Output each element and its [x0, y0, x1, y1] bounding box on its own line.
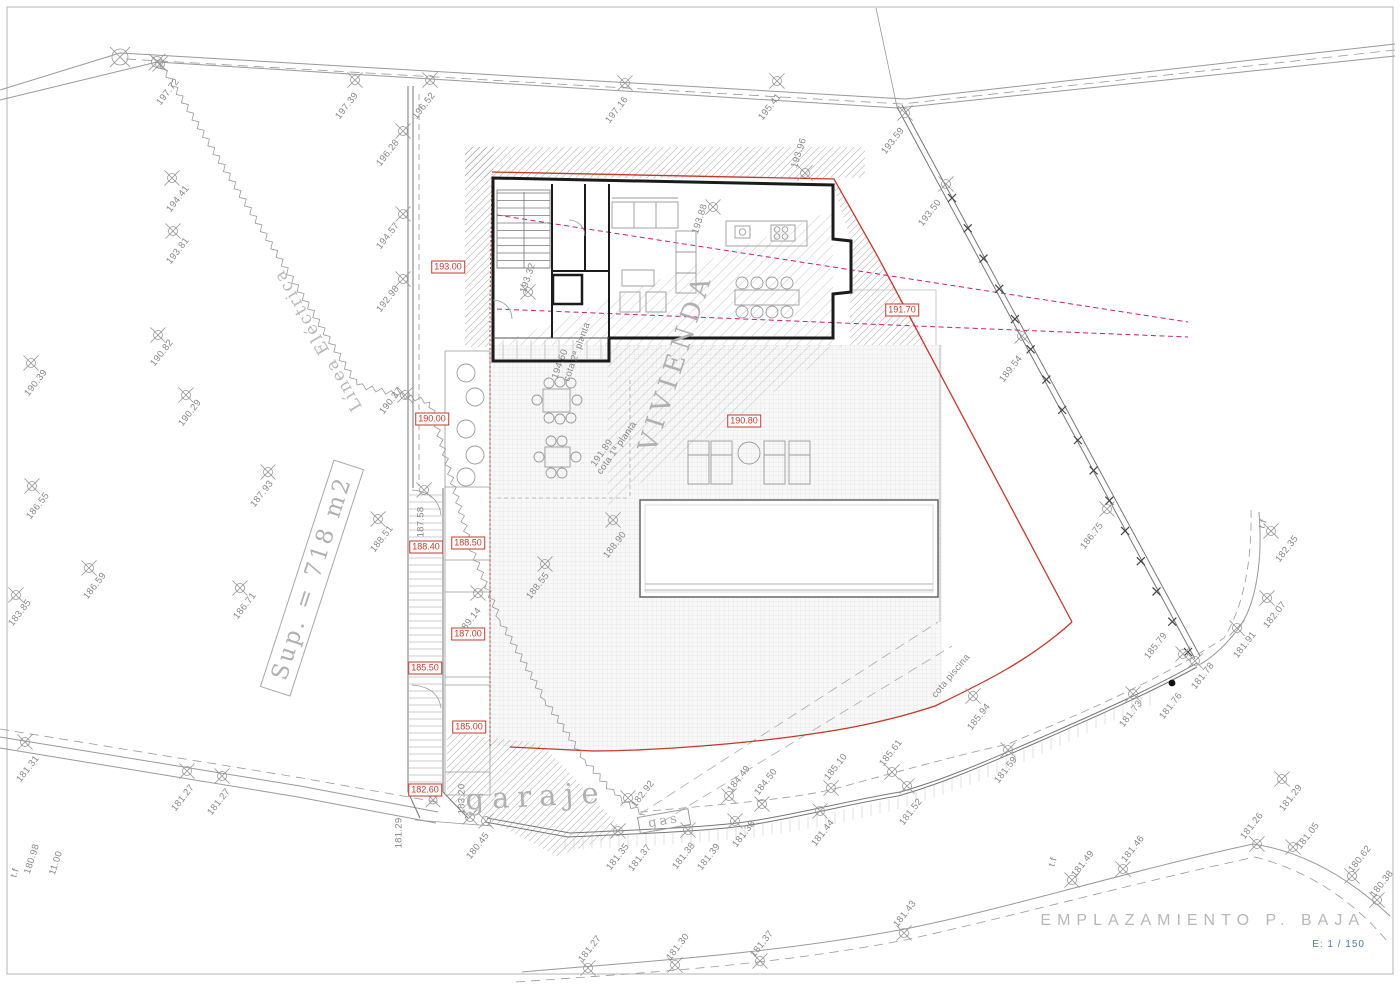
sheet-border [7, 7, 1393, 974]
section-lines [497, 215, 1188, 337]
sheet-title: EMPLAZAMIENTO P. BAJA [1040, 912, 1365, 930]
terrace-and-pool [497, 290, 940, 622]
fence-corner-dot [1169, 680, 1176, 687]
title-block: EMPLAZAMIENTO P. BAJA E: 1 / 150 [1040, 912, 1365, 950]
site-plan-sheet: 197.72197.39196.52197.16195.41193.59193.… [0, 0, 1400, 989]
roads [0, 8, 1395, 982]
parcel-fence [408, 86, 1251, 837]
site-plan-drawing [0, 0, 1400, 989]
sheet-scale: E: 1 / 150 [1040, 939, 1365, 950]
pool [640, 500, 938, 597]
